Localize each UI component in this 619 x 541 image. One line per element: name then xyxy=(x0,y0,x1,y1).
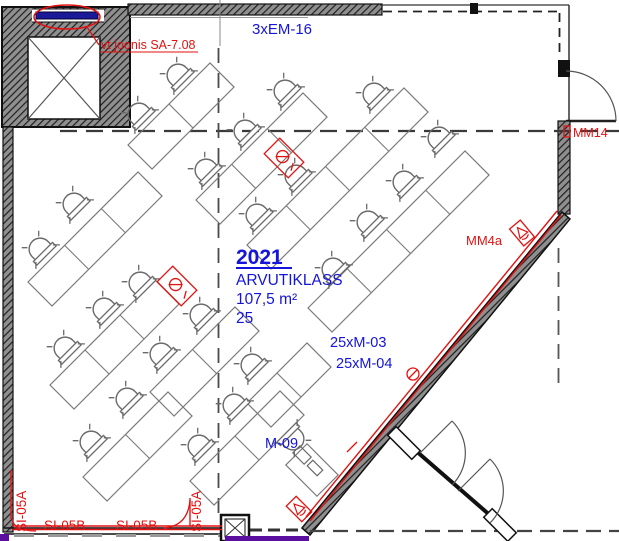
label-si05b-2: SI-05B xyxy=(116,518,157,533)
floor-plan-page: 2021 ARVUTIKLASS 107,5 m² 25 3xEM-16 25x… xyxy=(0,0,619,541)
label-em16: 3xEM-16 xyxy=(252,21,312,38)
wall-block xyxy=(470,3,478,14)
room-area: 107,5 m² xyxy=(236,291,297,308)
chair-icon xyxy=(346,200,388,242)
em-vent-bar xyxy=(36,12,98,19)
chair-icon xyxy=(118,261,160,303)
chair-icon xyxy=(352,72,394,114)
chair-icon xyxy=(177,424,219,466)
floor-plan-drawing: 2021 ARVUTIKLASS 107,5 m² 25 3xEM-16 25x… xyxy=(0,0,619,541)
chair-icon xyxy=(230,343,272,385)
chair-icon xyxy=(417,116,459,158)
label-si05b-1: SI-05B xyxy=(44,518,85,533)
room-number: 2021 xyxy=(236,246,283,269)
label-m09: M-09 xyxy=(265,436,298,452)
label-note: vt joonis SA-7.08 xyxy=(101,38,196,52)
desk-chain xyxy=(247,88,428,269)
desk-chain xyxy=(50,280,179,409)
chair-icon xyxy=(105,377,147,419)
label-m03: 25xM-03 xyxy=(330,335,386,351)
grid-lines xyxy=(60,0,619,531)
double-door-vestibule xyxy=(388,421,517,541)
diagonal-wall xyxy=(302,212,570,535)
chair-icon xyxy=(274,154,316,196)
label-m04: 25xM-04 xyxy=(336,356,392,372)
label-si05a-left: SI-05A xyxy=(14,491,29,532)
room-name: ARVUTIKLASS xyxy=(236,272,343,289)
cable-tick xyxy=(347,442,357,452)
equipment-icon xyxy=(307,460,323,476)
shaft xyxy=(2,7,130,127)
chair-icon xyxy=(235,193,277,235)
chair-icon xyxy=(179,293,221,335)
door-top-right xyxy=(566,71,616,121)
top-wall xyxy=(128,4,382,15)
label-mm14: MM14 xyxy=(573,126,608,140)
floor-outlet-icon xyxy=(264,138,304,178)
chair-icon xyxy=(18,227,60,269)
floor-outlet-icon xyxy=(157,266,197,306)
wall-block xyxy=(558,60,570,77)
label-si05a-right: SI-05A xyxy=(189,491,204,532)
trunking-bend-arc xyxy=(164,500,190,528)
chair-icon xyxy=(52,182,94,224)
chair-icon xyxy=(43,326,85,368)
chair-icon xyxy=(82,287,124,329)
speaker-icon xyxy=(286,496,311,521)
teacher-station xyxy=(273,419,338,496)
desk-chain xyxy=(247,343,331,427)
chair-icon xyxy=(263,69,305,111)
chair-icon xyxy=(184,148,226,190)
chair-icon xyxy=(212,383,254,425)
desk-chain xyxy=(28,172,162,306)
chair-icon xyxy=(156,53,198,95)
label-mm4a: MM4a xyxy=(466,233,503,248)
purple-cable-corner xyxy=(0,534,9,541)
desk-chain xyxy=(308,151,489,332)
chair-icon xyxy=(382,160,424,202)
room-capacity: 25 xyxy=(236,310,253,327)
